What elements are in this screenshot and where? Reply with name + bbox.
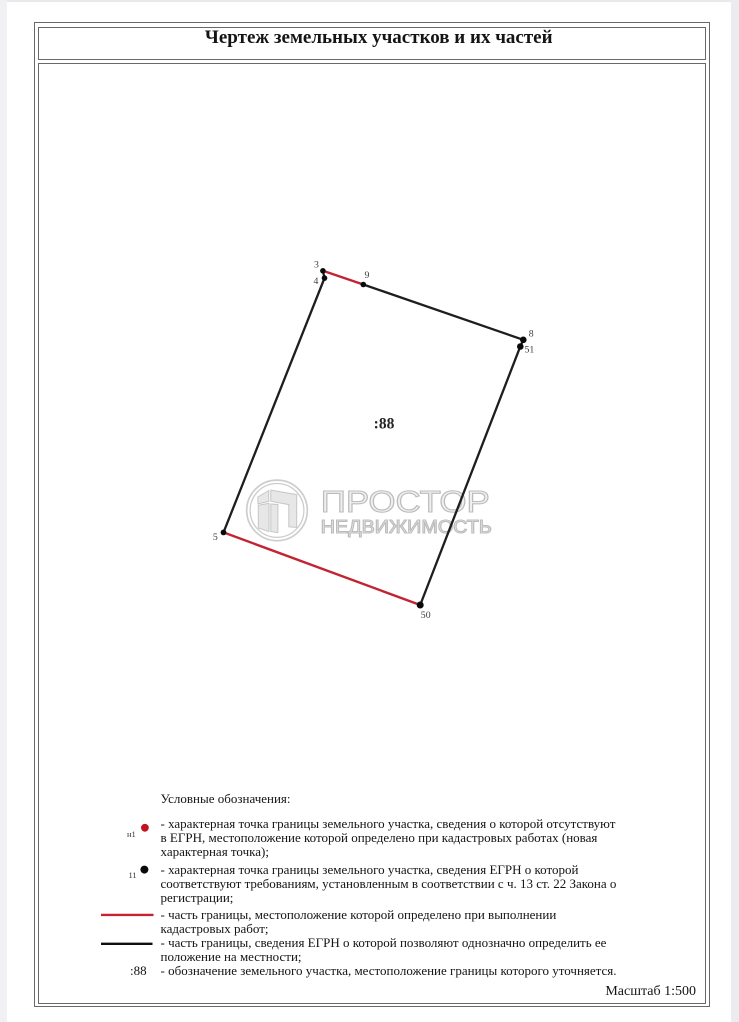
svg-text:8: 8 xyxy=(529,329,534,340)
svg-text:4: 4 xyxy=(313,276,318,287)
svg-text:51: 51 xyxy=(525,345,535,356)
svg-text:НЕДВИЖИМОСТЬ: НЕДВИЖИМОСТЬ xyxy=(321,517,492,537)
svg-text:5: 5 xyxy=(213,532,218,543)
svg-text:9: 9 xyxy=(364,270,369,281)
svg-text::88: :88 xyxy=(374,416,395,433)
svg-text:3: 3 xyxy=(314,260,319,271)
svg-text:50: 50 xyxy=(421,610,431,621)
